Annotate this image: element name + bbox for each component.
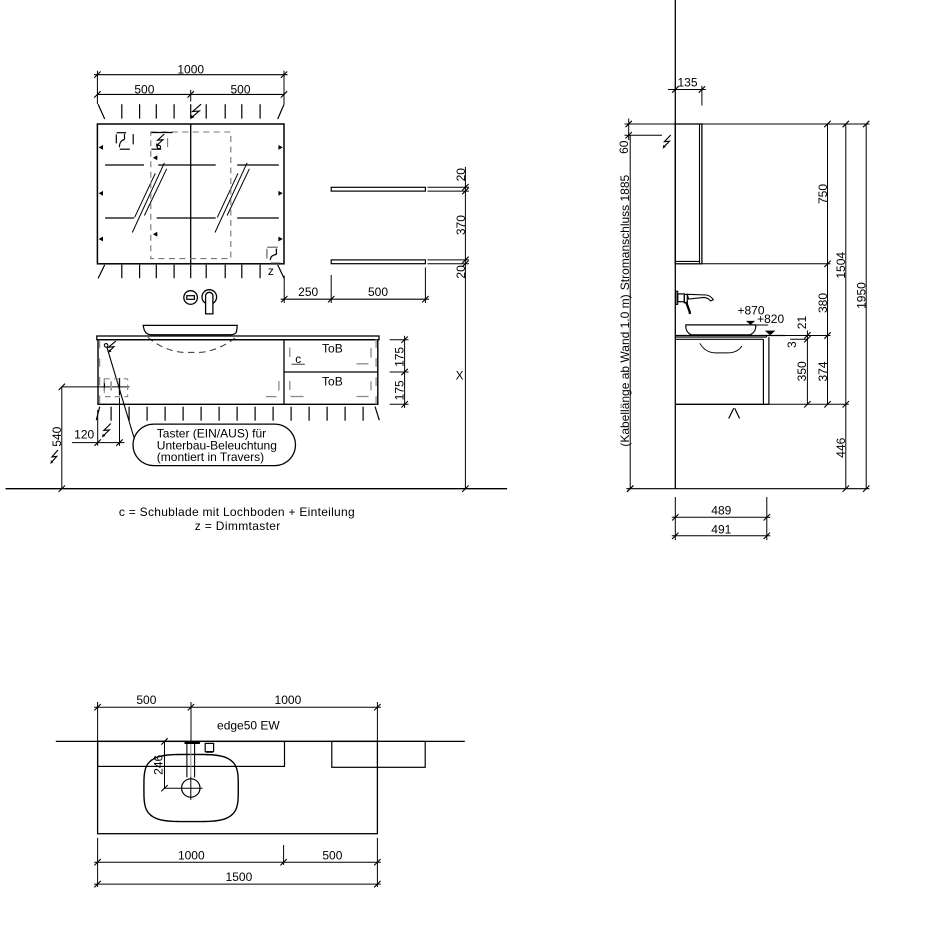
svg-text:250: 250 [298,285,318,299]
svg-text:120: 120 [74,428,94,442]
svg-text:500: 500 [230,82,250,96]
svg-text:500: 500 [368,285,388,299]
svg-text:1500: 1500 [226,870,253,884]
svg-text:(Kabellänge ab Wand 1.0 m): (Kabellänge ab Wand 1.0 m) [618,294,632,446]
svg-text:175: 175 [393,347,407,367]
svg-text:446: 446 [834,437,848,457]
svg-text:374: 374 [816,361,830,381]
svg-text:500: 500 [136,693,156,707]
svg-text:X: X [456,370,464,382]
svg-text:1000: 1000 [275,693,302,707]
svg-text:ToB: ToB [322,341,343,355]
svg-text:500: 500 [322,848,342,862]
svg-text:491: 491 [711,522,731,536]
svg-text:edge50 EW: edge50 EW [217,718,280,732]
svg-text:60: 60 [617,140,631,154]
svg-text:3: 3 [785,341,799,348]
svg-text:350: 350 [795,361,809,381]
svg-text:246: 246 [151,754,165,774]
svg-text:380: 380 [816,293,830,313]
svg-text:1504: 1504 [834,252,848,279]
svg-text:z = Dimmtaster: z = Dimmtaster [195,519,281,533]
svg-text:20: 20 [454,168,468,182]
svg-text:1000: 1000 [177,63,204,77]
svg-text:+820: +820 [757,312,784,326]
svg-text:540: 540 [50,426,64,446]
svg-text:21: 21 [795,316,809,330]
svg-text:489: 489 [711,504,731,518]
svg-text:750: 750 [816,184,830,204]
svg-text:500: 500 [134,82,154,96]
svg-text:20: 20 [454,265,468,279]
svg-text:ToB: ToB [322,375,343,389]
svg-text:1000: 1000 [178,848,205,862]
svg-text:c = Schublade mit Lochboden +: c = Schublade mit Lochboden + Einteilung [119,505,355,519]
svg-text:z: z [268,264,274,278]
svg-text:(montiert in Travers): (montiert in Travers) [157,450,264,464]
svg-text:1950: 1950 [855,282,869,309]
svg-text:Stromanschluss 1885: Stromanschluss 1885 [618,174,632,290]
svg-text:370: 370 [454,215,468,235]
svg-text:175: 175 [393,380,407,400]
svg-text:135: 135 [677,75,697,89]
